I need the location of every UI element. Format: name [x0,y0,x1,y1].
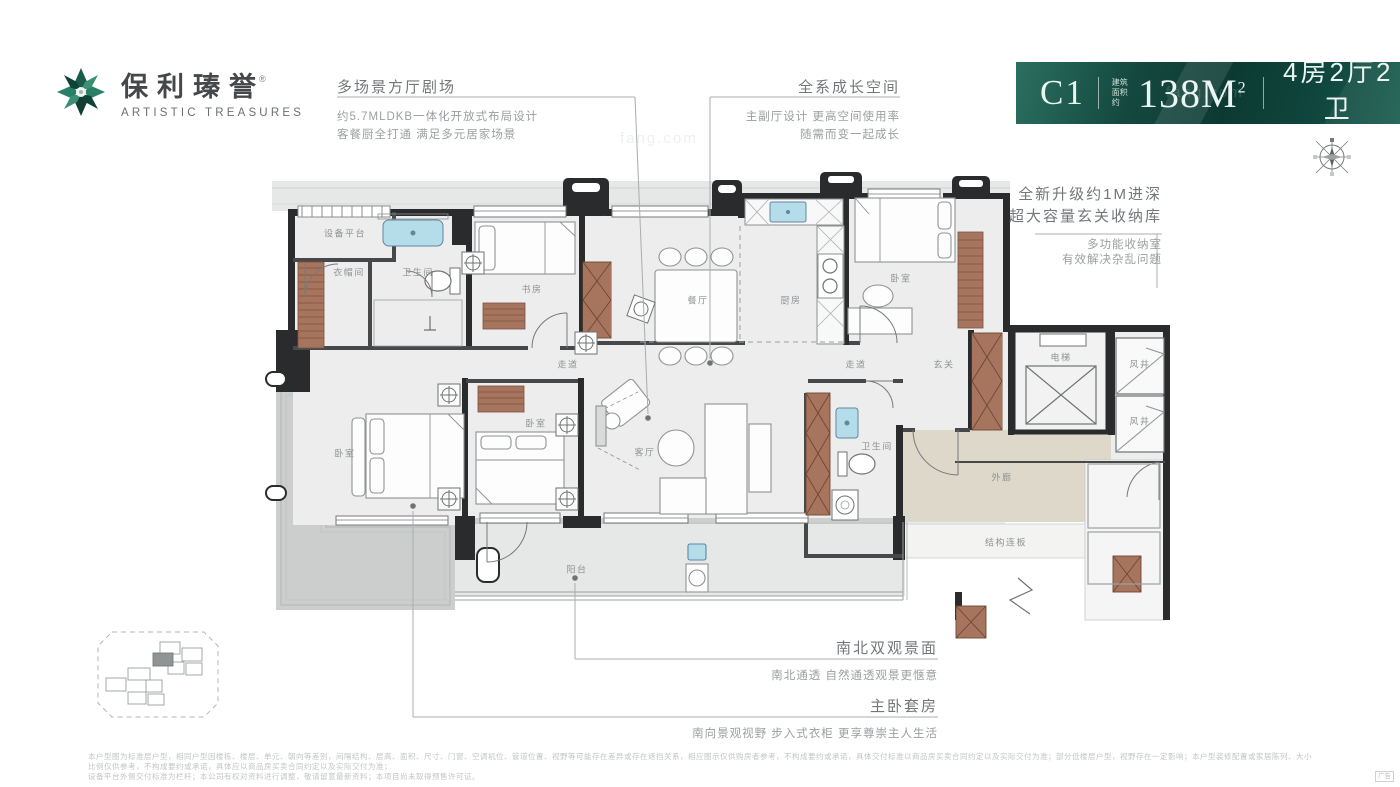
room-label-bath-2: 卫生间 [861,440,893,453]
annotation-master-suite: 主卧套房 南向景观视野 步入式衣柜 更享尊崇主人生活 [692,695,938,743]
room-label-foyer: 玄关 [933,358,954,371]
annotation-title: 全系成长空间 [746,76,900,97]
key-plan-highlight-unit [153,653,173,666]
unit-badge: C1 建筑 面积约 138M2 4房2厅2卫 ARTISTIC TREASURE… [1016,62,1400,124]
badge-divider [1263,77,1264,109]
page: 保利瑧誉® ARTISTIC TREASURES C1 建筑 面积约 138M2… [0,0,1400,787]
badge-divider [1098,77,1099,109]
annotation-body: 南向景观视野 步入式衣柜 更享尊崇主人生活 [692,725,938,743]
room-label-elevator: 电梯 [1050,351,1071,364]
room-label-living: 客厅 [634,446,655,459]
annotation-foyer-storage: 全新升级约1M进深 超大容量玄关收纳库 多功能收纳室 有效解决杂乱问题 [1009,184,1162,268]
room-label-bedroom-s: 卧室 [525,417,546,430]
disclaimer: 本户型图为标准层户型，相同户型因楼栋、楼层、单元、朝向等差别，间隔结构、层高、面… [88,752,1314,782]
annotation-title: 全新升级约1M进深 超大容量玄关收纳库 [1009,184,1162,228]
room-label-outer-corridor: 外廊 [991,471,1012,484]
room-label-cloakroom: 衣帽间 [333,266,365,279]
annotation-body: 多功能收纳室 有效解决杂乱问题 [1009,238,1162,268]
badge-area-prefix: 建筑 面积约 [1112,78,1133,108]
watermark: fang.com [620,130,698,147]
watermark: fang.com [1166,84,1244,101]
room-label-shaft-1: 风井 [1129,358,1150,371]
room-label-dining: 餐厅 [687,294,708,307]
brand-logo: 保利瑧誉® ARTISTIC TREASURES [55,64,355,120]
key-plan [98,632,218,717]
annotation-title: 南北双观景面 [771,637,938,658]
brand-name-cn: 保利瑧誉® [121,65,304,104]
room-label-kitchen: 厨房 [780,294,801,307]
annotation-growth-space: 全系成长空间 主副厅设计 更高空间使用率 随需而变一起成长 [746,76,900,144]
room-label-study: 书房 [521,283,542,296]
room-label-balcony: 阳台 [566,563,587,576]
room-label-equipment-platform: 设备平台 [324,227,366,240]
annotation-body: 主副厅设计 更高空间使用率 随需而变一起成长 [746,108,900,144]
annotation-title: 多场景方厅剧场 [337,76,538,97]
annotation-body: 约5.7MLDKB一体化开放式布局设计 客餐厨全打通 满足多元居家场景 [337,108,538,144]
ad-tag: 广告 [1375,771,1394,782]
room-label-bath-1: 卫生间 [402,266,434,279]
room-label-bedroom-ne: 卧室 [890,272,911,285]
room-label-structure-slab: 结构连板 [985,536,1027,549]
room-label-corridor-w: 走道 [557,358,578,371]
compass-icon [1313,138,1351,176]
annotation-north-south-view: 南北双观景面 南北通透 自然通透观景更惬意 [771,637,938,685]
annotation-multi-scene-hall: 多场景方厅剧场 约5.7MLDKB一体化开放式布局设计 客餐厨全打通 满足多元居… [337,76,538,144]
annotation-body: 南北通透 自然通透观景更惬意 [771,667,938,685]
brand-logo-icon [55,66,107,118]
badge-unit-code: C1 [1040,73,1085,113]
annotation-title: 主卧套房 [692,695,938,716]
room-label-corridor-e: 走道 [845,358,866,371]
room-label-shaft-2: 风井 [1129,415,1150,428]
brand-name-en: ARTISTIC TREASURES [121,107,304,119]
room-label-bedroom-sw: 卧室 [334,447,355,460]
